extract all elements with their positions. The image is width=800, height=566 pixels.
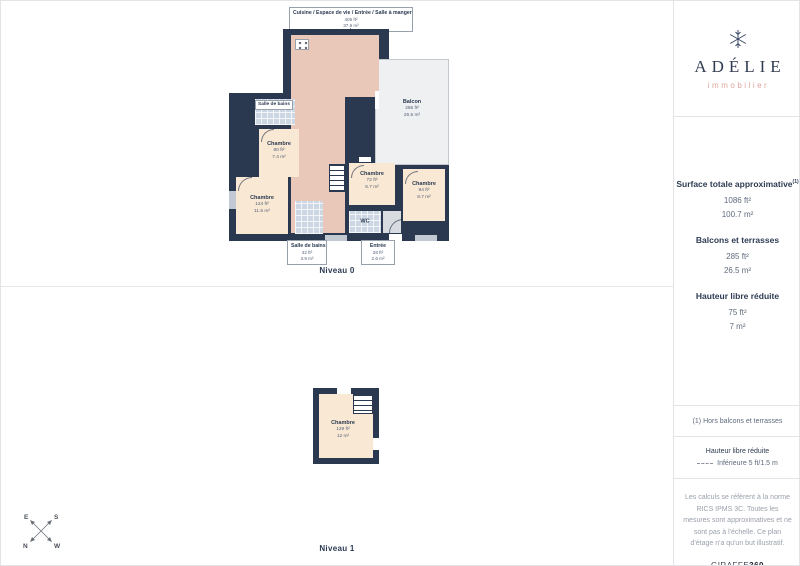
dashed-line-swatch — [697, 463, 713, 464]
callout-kitchen-living: Cuisine / Espace de vie / Entrée / Salle… — [289, 7, 413, 32]
callout-connector-dot — [305, 236, 308, 239]
staircase — [353, 394, 373, 414]
level-1-label: Niveau 1 — [1, 544, 673, 553]
floorplan-page: Cuisine / Espace de vie / Entrée / Salle… — [0, 0, 800, 566]
brand-name: ADÉLIE — [689, 57, 785, 77]
label-chambre-4: Chambre 94 ft² 8.7 m² — [412, 181, 436, 201]
svg-text:S: S — [54, 514, 59, 521]
legend-section: Hauteur libre réduite Inférieure 5 ft/1.… — [674, 437, 800, 479]
stat-total-surface: Surface totale approximative(1) 1086 ft²… — [674, 179, 800, 222]
compass-rose-icon: E S N W — [17, 505, 65, 555]
window-segment — [229, 191, 236, 209]
window-segment — [415, 235, 437, 241]
callout-bathroom: Salle de bains 42 ft² 3.9 m² — [287, 240, 327, 265]
section-divider — [1, 286, 673, 287]
staircase — [329, 164, 345, 192]
surface-stats: Surface totale approximative(1) 1086 ft²… — [674, 117, 800, 406]
door-gap — [337, 388, 351, 394]
snowflake-icon — [727, 28, 749, 50]
info-sidebar: ADÉLIE immobilier Surface totale approxi… — [673, 1, 800, 566]
legend-heading: Hauteur libre réduite — [706, 448, 769, 455]
legend-row: Inférieure 5 ft/1.5 m — [697, 460, 778, 467]
label-balcon: Balcon 285 ft² 26.5 m² — [403, 99, 421, 119]
plan-niveau-0: Salle de bains Chambre 80 ft² 7.4 m² Cha… — [229, 29, 451, 241]
room-bathroom-2 — [295, 201, 323, 234]
label-chambre-n1: Chambre 129 ft² 12 m² — [331, 420, 355, 440]
level-0-label: Niveau 0 — [1, 266, 673, 275]
disclaimer-section: Les calculs se réfèrent à la norme RICS … — [674, 479, 800, 566]
giraffe360-watermark: GIRAFFE360 — [683, 561, 792, 566]
svg-text:W: W — [54, 543, 61, 550]
footnote-section: (1) Hors balcons et terrasses — [674, 406, 800, 437]
door-gap — [359, 157, 371, 162]
plan-area: Cuisine / Espace de vie / Entrée / Salle… — [1, 1, 673, 566]
stat-balconies: Balcons et terrasses 285 ft² 26.5 m² — [674, 235, 800, 278]
label-bathroom-1: Salle de bains — [255, 100, 293, 110]
brand-logo: ADÉLIE immobilier — [674, 1, 800, 117]
stat-reduced-height: Hauteur libre réduite 75 ft² 7 m² — [674, 291, 800, 334]
label-chambre-2: Chambre 124 ft² 11.5 m² — [250, 195, 274, 215]
door-gap — [375, 91, 379, 109]
stat-heading: Surface totale approximative(1) — [674, 179, 800, 189]
footnote-text: (1) Hors balcons et terrasses — [693, 418, 783, 425]
svg-text:E: E — [24, 514, 29, 521]
label-wc: WC — [360, 218, 369, 225]
label-chambre-3: Chambre 72 ft² 6.7 m² — [360, 171, 384, 191]
window-segment — [325, 235, 347, 241]
callout-connector-dot — [376, 236, 379, 239]
plan-niveau-1: Chambre 129 ft² 12 m² — [313, 388, 379, 464]
door-gap — [373, 438, 379, 450]
callout-entree: Entrée 28 ft² 2.6 m² — [361, 240, 395, 265]
legend-value: Inférieure 5 ft/1.5 m — [717, 460, 778, 467]
stove-icon — [295, 39, 309, 50]
svg-text:N: N — [23, 543, 28, 550]
disclaimer-text: Les calculs se réfèrent à la norme RICS … — [683, 492, 792, 550]
label-chambre-1: Chambre 80 ft² 7.4 m² — [267, 141, 291, 161]
brand-tagline: immobilier — [706, 81, 769, 90]
callout-title: Cuisine / Espace de vie / Entrée / Salle… — [293, 10, 409, 17]
